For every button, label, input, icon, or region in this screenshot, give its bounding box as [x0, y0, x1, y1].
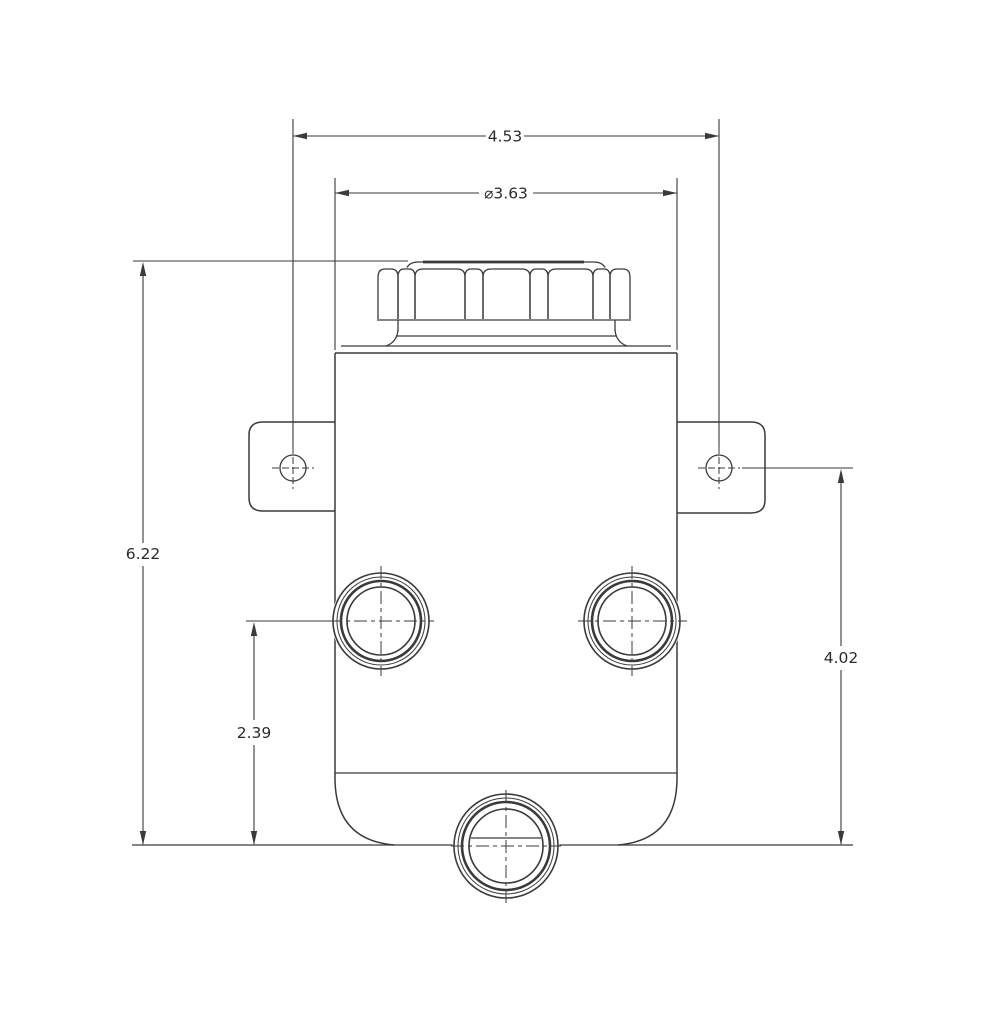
dim-mount-to-base: 4.02	[742, 468, 858, 845]
dim-arrow-up	[838, 469, 844, 483]
dim-overall-height-label: 6.22	[126, 545, 161, 563]
cap-knurl-facets	[378, 269, 630, 319]
dim-arrow-up	[140, 262, 146, 276]
dim-arrow-right	[663, 190, 677, 196]
dim-arrow-up	[251, 622, 257, 636]
dim-arrow-left	[293, 133, 307, 139]
bottom-port	[451, 790, 561, 903]
body-bottom-left-corner	[335, 780, 394, 845]
drawing-canvas: 4.53 ⌀3.63 6.22 2.39 4.02	[0, 0, 997, 1034]
left-port	[329, 566, 434, 676]
dim-overall-width: 4.53	[293, 119, 719, 447]
reservoir-cap	[377, 262, 631, 346]
dim-overall-height: 6.22	[126, 261, 408, 845]
dim-arrow-down	[251, 831, 257, 845]
dim-arrow-left	[335, 190, 349, 196]
dim-port-to-base: 2.39	[237, 621, 332, 845]
dim-mount-to-base-label: 4.02	[824, 649, 859, 667]
dim-overall-width-extensions	[293, 119, 719, 447]
dim-overall-width-label: 4.53	[488, 128, 523, 146]
right-mount-hole-centermark	[698, 447, 740, 489]
cap-neck	[386, 320, 627, 346]
right-port	[578, 566, 687, 676]
dim-port-to-base-label: 2.39	[237, 724, 272, 742]
left-tab-outline	[249, 422, 335, 511]
left-mount-tab	[249, 422, 335, 511]
body-bottom-right-corner	[618, 780, 677, 845]
dim-arrow-right	[705, 133, 719, 139]
dim-cap-diameter-label: ⌀3.63	[484, 185, 528, 203]
dim-cap-diameter-extensions	[335, 178, 677, 350]
technical-drawing: 4.53 ⌀3.63 6.22 2.39 4.02	[0, 0, 997, 1034]
dim-arrow-down	[140, 831, 146, 845]
dim-cap-diameter: ⌀3.63	[335, 178, 677, 350]
dim-arrow-down	[838, 831, 844, 845]
left-mount-hole-centermark	[272, 447, 314, 489]
